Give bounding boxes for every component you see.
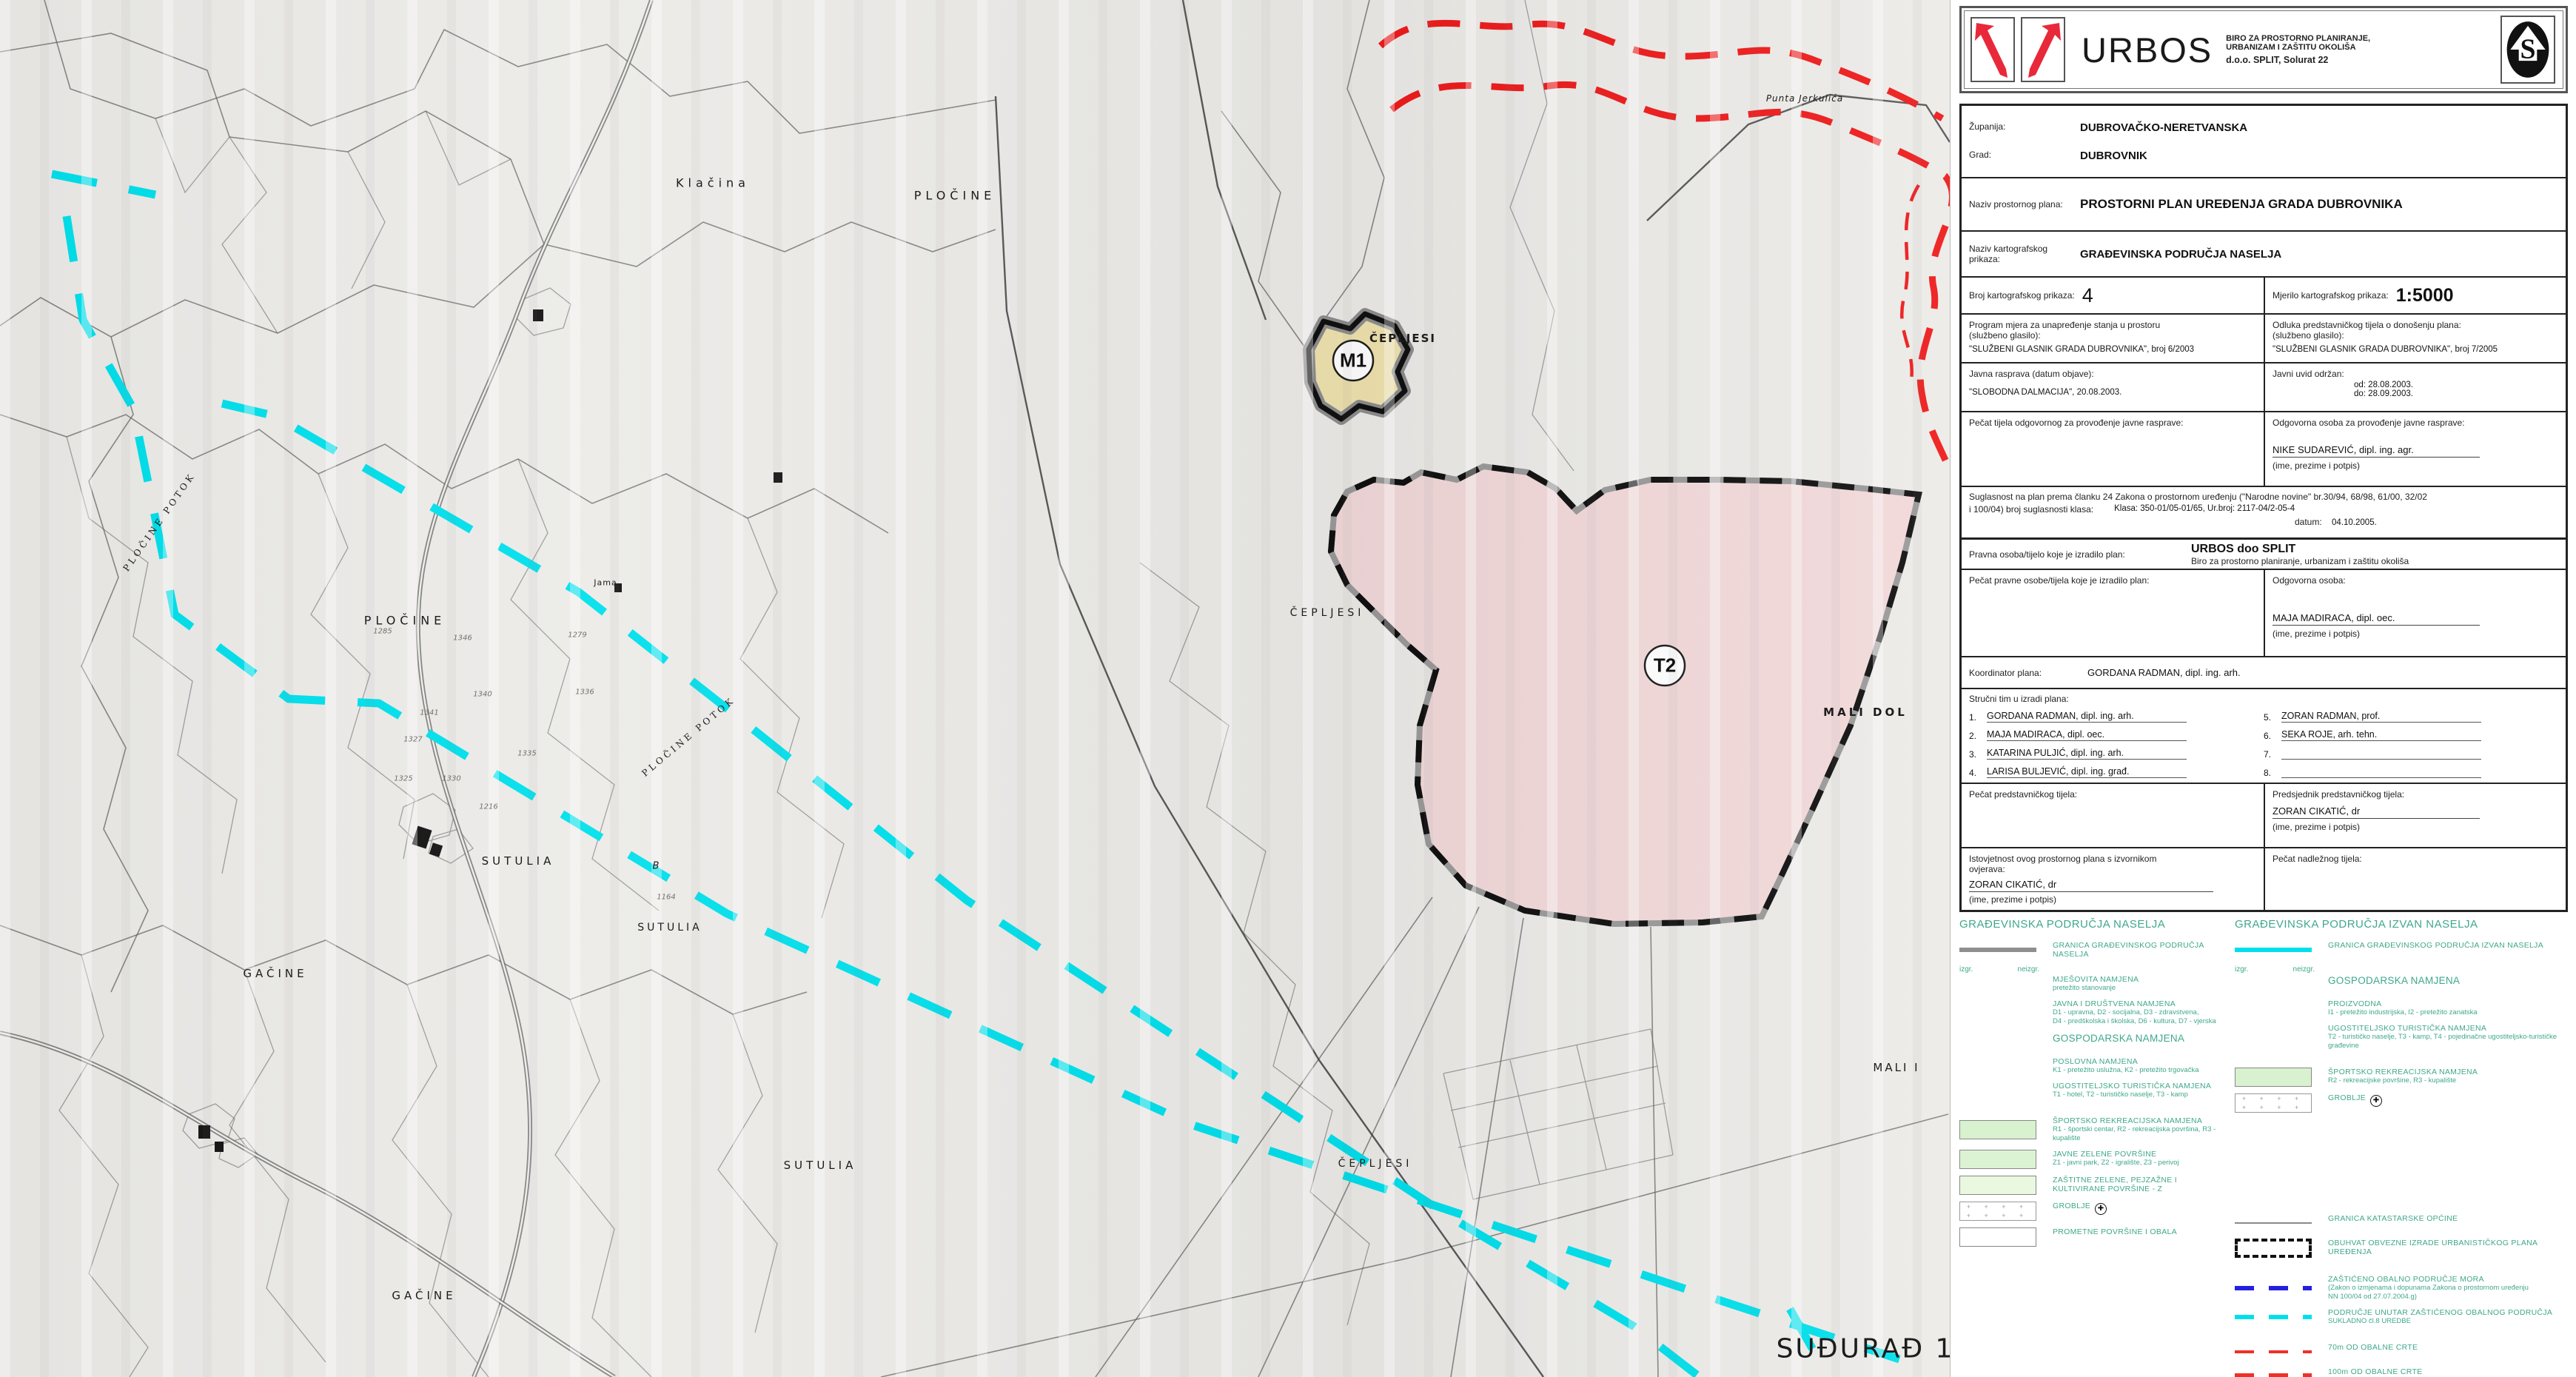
- plan-sheet: KlačinaPLOČINEPLOČINEPLOČINE POTOKPLOČIN…: [0, 0, 2576, 1377]
- red-arrow-up-right-icon: [2022, 19, 2064, 81]
- legend-caption-izgr-neizgr: izgr.neizgr.: [2235, 965, 2322, 974]
- odg-rasprava-label: Odgovorna osoba za provođenje javne rasp…: [2273, 418, 2558, 428]
- map-label-mali-i: MALI I: [1873, 1061, 1919, 1074]
- broj-label: Broj kartografskog prikaza:: [1962, 285, 2082, 306]
- naziv-plana-value: PROSTORNI PLAN UREĐENJA GRADA DUBROVNIKA: [2080, 197, 2403, 212]
- team-member-name: KATARINA PULJIĆ, dipl. ing. arh.: [1987, 748, 2187, 760]
- team-member: 3. KATARINA PULJIĆ, dipl. ing. arh.: [1969, 748, 2264, 760]
- team-member-number: 1.: [1969, 712, 1987, 723]
- legend-item-desc: T2 - turističko naselje, T3 - kamp, T4 -…: [2328, 1033, 2572, 1051]
- legend-swatch-pair: [1959, 999, 2047, 1026]
- legend-column-izvan-naselja: GRAĐEVINSKA PODRUČJA IZVAN NASELJAGRANIC…: [2235, 918, 2572, 1377]
- arrow-logo-left: [1970, 17, 2015, 82]
- map-label-plo-ine: PLOČINE: [364, 614, 446, 628]
- legend-swatch-pair: [2235, 999, 2322, 1017]
- team-member-name: SEKA ROJE, arh. tehn.: [2281, 729, 2481, 741]
- team-member-number: 7.: [2264, 749, 2281, 760]
- map-label-jama: Jama: [594, 578, 617, 588]
- team-member-name: LARISA BULJEVIĆ, dipl. ing. građ.: [1987, 766, 2187, 778]
- legend: GRAĐEVINSKA PODRUČJA NASELJAGRANICA GRAĐ…: [1959, 918, 2572, 1371]
- pecat-predst-label: Pečat predstavničkog tijela:: [1969, 789, 2256, 800]
- mjerilo-value: 1:5000: [2396, 285, 2454, 306]
- legend-swatch-line: [1959, 941, 2047, 959]
- uvid-do: do: 28.09.2003.: [2354, 389, 2558, 398]
- brand-address: d.o.o. SPLIT, Solurat 22: [2226, 55, 2370, 65]
- map-label--epljesi: ČEPLJESI: [1290, 607, 1365, 619]
- legend-caption-izgr-neizgr: izgr.neizgr.: [1959, 965, 2047, 974]
- legend-item: PODRUČJE UNUTAR ZAŠTIĆENOG OBALNOG PODRU…: [2235, 1308, 2572, 1326]
- s-seal-icon: S: [2502, 17, 2554, 82]
- team-member: 4. LARISA BULJEVIĆ, dipl. ing. građ.: [1969, 766, 2264, 778]
- legend-item-title: MJEŠOVITA NAMJENA: [2053, 975, 2139, 984]
- legend-heading: GRAĐEVINSKA PODRUČJA NASELJA: [1959, 918, 2226, 931]
- legend-item: JAVNA I DRUŠTVENA NAMJENAD1 - upravna, D…: [1959, 999, 2226, 1026]
- map-label-sutulia: SUTULIA: [784, 1159, 857, 1172]
- map-label--epljesi: ČEPLJESI: [1369, 332, 1436, 345]
- legend-item: UGOSTITELJSKO TURISTIČKA NAMJENAT1 - hot…: [1959, 1082, 2226, 1099]
- odg-osoba-label: Odgovorna osoba:: [2273, 575, 2558, 586]
- legend-item-desc: T1 - hotel, T2 - turističko naselje, T3 …: [2053, 1090, 2211, 1099]
- map-label-1325: 1325: [394, 775, 412, 783]
- legend-item: GRANICA GRAĐEVINSKOG PODRUČJA NASELJA: [1959, 941, 2226, 959]
- legend-item-title: JAVNE ZELENE POVRŠINE: [2053, 1150, 2179, 1159]
- map-label--epljesi: ČEPLJESI: [1338, 1158, 1413, 1170]
- map-label-su-ura-1: SUĐURAĐ 1: [1777, 1334, 1955, 1364]
- legend-item-title: GROBLJE✚: [2053, 1202, 2107, 1215]
- map-label-ga-ine: GAČINE: [392, 1289, 456, 1302]
- roads: [0, 0, 651, 1377]
- map-label-1346: 1346: [453, 634, 472, 643]
- legend-item: ZAŠTITNE ZELENE, PEJZAŽNE I KULTIVIRANE …: [1959, 1176, 2226, 1195]
- map-label-1336: 1336: [575, 688, 594, 697]
- team-member-number: 2.: [1969, 731, 1987, 741]
- predsjednik-label: Predsjednik predstavničkog tijela:: [2273, 789, 2558, 800]
- legend-item: ZAŠTIĆENO OBALNO PODRUČJE MORA(Zakon o i…: [2235, 1275, 2572, 1301]
- legend-swatch-pair: [1959, 975, 2047, 993]
- legend-swatch-single: [2235, 1068, 2322, 1087]
- legend-item-title: GRANICA GRAĐEVINSKOG PODRUČJA NASELJA: [2053, 941, 2226, 959]
- legend-subheading: GOSPODARSKA NAMJENA: [1959, 1033, 2226, 1051]
- suglasnost-klasa: Klasa: 350-01/05-01/65, Ur.broj: 2117-04…: [2114, 504, 2295, 515]
- program-label: Program mjera za unapređenje stanja u pr…: [1969, 320, 2256, 330]
- legend-heading: GRAĐEVINSKA PODRUČJA IZVAN NASELJA: [2235, 918, 2572, 931]
- map-label-punta-jerkuli-a: Punta Jerkulića: [1766, 93, 1843, 104]
- team-member-name: [2281, 767, 2481, 778]
- uvid-label: Javni uvid održan:: [2273, 369, 2558, 379]
- legend-item: + + + + + + + +GROBLJE✚: [2235, 1093, 2572, 1113]
- legend-item-title: UGOSTITELJSKO TURISTIČKA NAMJENA: [2328, 1024, 2572, 1033]
- legend-item-title: GRANICA KATASTARSKE OPĆINE: [2328, 1214, 2458, 1223]
- legend-item-title: 70m OD OBALNE CRTE: [2328, 1343, 2418, 1352]
- mjerilo-label: Mjerilo kartografskog prikaza:: [2265, 285, 2396, 306]
- legend-item-title: 100m OD OBALNE CRTE: [2328, 1367, 2422, 1376]
- legend-item-title: POSLOVNA NAMJENA: [2053, 1057, 2199, 1066]
- team-member: 5. ZORAN RADMAN, prof.: [2264, 711, 2558, 723]
- legend-item-title: ZAŠTIĆENO OBALNO PODRUČJE MORA: [2328, 1275, 2529, 1284]
- legend-item: GRANICA KATASTARSKE OPĆINE: [2235, 1214, 2572, 1232]
- legend-item: 100m OD OBALNE CRTE: [2235, 1367, 2572, 1377]
- map-label-mali-dol: MALI DOL: [1823, 706, 1908, 719]
- legend-item-title: ŠPORTSKO REKREACIJSKA NAMJENA: [2053, 1116, 2226, 1125]
- cemetery-cross-icon: ✚: [2370, 1095, 2382, 1107]
- pravna-value: URBOS doo SPLIT: [2191, 543, 2409, 556]
- coastal-setback-lines: [1381, 23, 1953, 471]
- legend-item: ŠPORTSKO REKREACIJSKA NAMJENAR2 - rekrea…: [2235, 1068, 2572, 1087]
- legend-item-desc: D1 - upravna, D2 - socijalna, D3 - zdrav…: [2053, 1008, 2216, 1017]
- legend-item: JAVNE ZELENE POVRŠINEZ1 - javni park, Z2…: [1959, 1150, 2226, 1169]
- legend-item-title: PODRUČJE UNUTAR ZAŠTIĆENOG OBALNOG PODRU…: [2328, 1308, 2552, 1317]
- cemetery-cross-icon: ✚: [2095, 1203, 2107, 1215]
- odluka-value: "SLUŽBENI GLASNIK GRADA DUBROVNIKA", bro…: [2273, 345, 2558, 354]
- team-member-number: 4.: [1969, 768, 1987, 778]
- legend-item: PROMETNE POVRŠINE I OBALA: [1959, 1227, 2226, 1247]
- map-label-1341: 1341: [420, 709, 438, 717]
- legend-swatch-single: [1959, 1227, 2047, 1247]
- map-label-1340: 1340: [473, 691, 492, 699]
- broj-value: 4: [2082, 284, 2093, 307]
- istovjetnost-label: Istovjetnost ovog prostornog plana s izv…: [1969, 854, 2256, 864]
- legend-item-desc: Z1 - javni park, Z2 - igralište, Z3 - pe…: [2053, 1159, 2179, 1167]
- team-member-number: 6.: [2264, 731, 2281, 741]
- legend-swatch-pair: [1959, 1082, 2047, 1099]
- map-label-kla-ina: Klačina: [676, 176, 750, 190]
- zupanija-value: DUBROVAČKO-NERETVANSKA: [2080, 121, 2247, 134]
- map-label-1285: 1285: [373, 628, 392, 636]
- legend-item-title: PROMETNE POVRŠINE I OBALA: [2053, 1227, 2177, 1236]
- cadastral-map[interactable]: KlačinaPLOČINEPLOČINEPLOČINE POTOKPLOČIN…: [0, 0, 1954, 1377]
- legend-item: ŠPORTSKO REKREACIJSKA NAMJENAR1 - šports…: [1959, 1116, 2226, 1143]
- team-member-name: GORDANA RADMAN, dipl. ing. arh.: [1987, 711, 2187, 723]
- legend-swatch-single: [1959, 1150, 2047, 1169]
- team-member: 8.: [2264, 766, 2558, 778]
- tim-label: Stručni tim u izradi plana:: [1969, 694, 2558, 704]
- legend-swatch-pair: [1959, 1057, 2047, 1075]
- plan-info-table: Županija:DUBROVAČKO-NERETVANSKA Grad:DUB…: [1959, 104, 2568, 912]
- map-label-plo-ine: PLOČINE: [914, 189, 996, 203]
- legend-item-title: JAVNA I DRUŠTVENA NAMJENA: [2053, 999, 2216, 1008]
- team-member-number: 5.: [2264, 712, 2281, 723]
- legend-swatch-line: [2235, 941, 2322, 959]
- expert-team-list: 1. GORDANA RADMAN, dipl. ing. arh.5. ZOR…: [1969, 704, 2558, 778]
- brand-name: URBOS: [2082, 30, 2213, 70]
- grad-label: Grad:: [1969, 150, 2080, 162]
- legend-swatch-dashes: [2235, 1275, 2322, 1301]
- legend-subheading: GOSPODARSKA NAMJENA: [2235, 975, 2572, 993]
- legend-item-desc: R1 - športski centar, R2 - rekreacijska …: [2053, 1125, 2226, 1143]
- legend-item-desc: NN 100/04 od 27.07.2004.g): [2328, 1293, 2529, 1301]
- team-member: 1. GORDANA RADMAN, dipl. ing. arh.: [1969, 711, 2264, 723]
- map-label-1335: 1335: [517, 750, 536, 758]
- legend-item-desc: R2 - rekreacijske površine, R3 - kupališ…: [2328, 1076, 2478, 1085]
- legend-swatch-single: [1959, 1116, 2047, 1143]
- pravna-label: Pravna osoba/tijelo koje je izradilo pla…: [1962, 544, 2191, 565]
- map-label-b: B: [653, 861, 660, 872]
- naziv-prikaza-value: GRAĐEVINSKA PODRUČJA NASELJA: [2080, 248, 2281, 261]
- map-label-1330: 1330: [442, 775, 460, 783]
- legend-item-desc: pretežito stanovanje: [2053, 984, 2139, 993]
- predsjednik-name: ZORAN CIKATIĆ, dr: [2273, 805, 2480, 819]
- legend-item: POSLOVNA NAMJENAK1 - pretežito uslužna, …: [1959, 1057, 2226, 1075]
- legend-item: + + + + + + + +GROBLJE✚: [1959, 1202, 2226, 1221]
- suglasnost-datum: 04.10.2005.: [2332, 518, 2377, 527]
- brand-subtitle-1: BIRO ZA PROSTORNO PLANIRANJE,: [2226, 34, 2370, 43]
- map-label-1216: 1216: [479, 803, 497, 811]
- map-label-1327: 1327: [403, 736, 422, 744]
- zupanija-label: Županija:: [1969, 121, 2080, 134]
- tourist-zone-T2[interactable]: [1331, 466, 1919, 924]
- odluka-label: Odluka predstavničkog tijela o donošenju…: [2273, 320, 2558, 330]
- title-block-panel: URBOS BIRO ZA PROSTORNO PLANIRANJE, URBA…: [1950, 0, 2576, 1377]
- pecat-rasprava-label: Pečat tijela odgovornog za provođenje ja…: [1969, 418, 2256, 428]
- team-member-name: [2281, 748, 2481, 760]
- koordinator-label: Koordinator plana:: [1962, 663, 2087, 683]
- legend-item: MJEŠOVITA NAMJENApretežito stanovanje: [1959, 975, 2226, 993]
- map-label-1279: 1279: [568, 631, 586, 640]
- legend-item-desc: SUKLADNO čl.8 UREDBE: [2328, 1317, 2552, 1326]
- legend-swatch-dashes: [2235, 1343, 2322, 1361]
- map-label-sutulia: SUTULIA: [637, 922, 702, 934]
- legend-item-title: PROIZVODNA: [2328, 999, 2478, 1008]
- red-arrow-up-left-icon: [1972, 19, 2013, 81]
- legend-item: GRANICA GRAĐEVINSKOG PODRUČJA IZVAN NASE…: [2235, 941, 2572, 959]
- legend-swatch-dashes: [2235, 1308, 2322, 1326]
- legend-item-title: ZAŠTITNE ZELENE, PEJZAŽNE I KULTIVIRANE …: [2053, 1176, 2226, 1193]
- team-member: 6. SEKA ROJE, arh. tehn.: [2264, 729, 2558, 741]
- legend-column-naselja: GRAĐEVINSKA PODRUČJA NASELJAGRANICA GRAĐ…: [1959, 918, 2226, 1253]
- legend-swatch-thinline: [2235, 1214, 2322, 1232]
- svg-text:S: S: [2520, 33, 2535, 64]
- legend-item-title: GRANICA GRAĐEVINSKOG PODRUČJA IZVAN NASE…: [2328, 941, 2543, 950]
- map-label-sutulia: SUTULIA: [482, 854, 555, 868]
- legend-swatch-pair: [2235, 1024, 2322, 1051]
- map-label-ga-ine: GAČINE: [243, 967, 307, 980]
- arrow-logo-right: [2021, 17, 2065, 82]
- legend-item: UGOSTITELJSKO TURISTIČKA NAMJENAT2 - tur…: [2235, 1024, 2572, 1051]
- team-member-name: ZORAN RADMAN, prof.: [2281, 711, 2481, 723]
- pecat-pravne-label: Pečat pravne osobe/tijela koje je izradi…: [1969, 575, 2256, 586]
- team-member-number: 8.: [2264, 768, 2281, 778]
- legend-item-title: UGOSTITELJSKO TURISTIČKA NAMJENA: [2053, 1082, 2211, 1090]
- brand-subtitle-2: URBANIZAM I ZAŠTITU OKOLIŠA: [2226, 43, 2370, 52]
- s-seal-logo: S: [2500, 16, 2555, 84]
- legend-item-desc: K1 - pretežito uslužna, K2 - pretežito t…: [2053, 1066, 2199, 1075]
- odg-osoba-name: MAJA MADIRACA, dipl. oec.: [2273, 612, 2480, 626]
- naziv-plana-label: Naziv prostornog plana:: [1962, 194, 2080, 215]
- map-label-1164: 1164: [657, 894, 675, 902]
- zone-marker-m1[interactable]: M1: [1340, 349, 1366, 372]
- pecat-nadleznog-label: Pečat nadležnog tijela:: [2273, 854, 2558, 864]
- legend-swatch-rectdash: [2235, 1239, 2322, 1258]
- legend-item-title: OBUHVAT OBVEZNE IZRADE URBANISTIČKOG PLA…: [2328, 1239, 2572, 1256]
- legend-swatch-crosses: + + + + + + + +: [1959, 1202, 2047, 1221]
- legend-swatch-single: [1959, 1176, 2047, 1195]
- program-value: "SLUŽBENI GLASNIK GRADA DUBROVNIKA", bro…: [1969, 345, 2256, 354]
- rasprava-label: Javna rasprava (datum objave):: [1969, 369, 2256, 379]
- uvid-od: od: 28.08.2003.: [2354, 381, 2558, 389]
- team-member-name: MAJA MADIRACA, dipl. oec.: [1987, 729, 2187, 741]
- legend-item-title: GROBLJE✚: [2328, 1093, 2382, 1107]
- legend-item: PROIZVODNAI1 - pretežito industrijska, I…: [2235, 999, 2572, 1017]
- grad-value: DUBROVNIK: [2080, 150, 2147, 162]
- legend-item: OBUHVAT OBVEZNE IZRADE URBANISTIČKOG PLA…: [2235, 1239, 2572, 1258]
- legend-item-desc: D4 - predškolska i školska, D6 - kultura…: [2053, 1017, 2216, 1026]
- legend-swatch-crosses: + + + + + + + +: [2235, 1093, 2322, 1113]
- legend-item: 70m OD OBALNE CRTE: [2235, 1343, 2572, 1361]
- firm-header: URBOS BIRO ZA PROSTORNO PLANIRANJE, URBA…: [1959, 6, 2568, 93]
- team-member: 2. MAJA MADIRACA, dipl. oec.: [1969, 729, 2264, 741]
- legend-swatch-dashes: [2235, 1367, 2322, 1377]
- legend-item-title: ŠPORTSKO REKREACIJSKA NAMJENA: [2328, 1068, 2478, 1076]
- naziv-prikaza-label: Naziv kartografskog prikaza:: [1962, 238, 2080, 269]
- team-member-number: 3.: [1969, 749, 1987, 760]
- istovjetnost-name: ZORAN CIKATIĆ, dr: [1969, 879, 2213, 892]
- zone-marker-t2[interactable]: T2: [1654, 654, 1676, 677]
- rasprava-value: "SLOBODNA DALMACIJA", 20.08.2003.: [1969, 388, 2256, 397]
- legend-item-desc: I1 - pretežito industrijska, I2 - pretež…: [2328, 1008, 2478, 1017]
- suglasnost-text: Suglasnost na plan prema članku 24 Zakon…: [1969, 492, 2558, 502]
- koordinator-name: GORDANA RADMAN, dipl. ing. arh.: [2087, 667, 2241, 678]
- legend-item-desc: (Zakon o izmjenama i dopunama Zakona o p…: [2328, 1284, 2529, 1293]
- team-member: 7.: [2264, 748, 2558, 760]
- odg-rasprava-name: NIKE SUDAREVIĆ, dipl. ing. agr.: [2273, 444, 2480, 458]
